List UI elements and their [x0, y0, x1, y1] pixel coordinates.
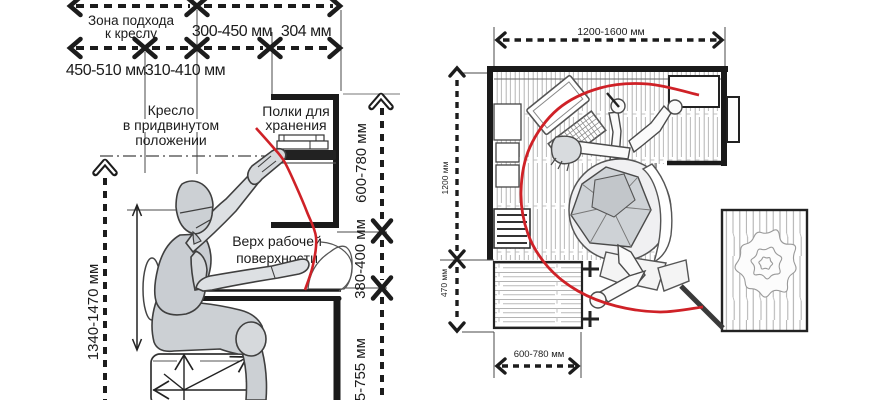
svg-text:450-510 мм: 450-510 мм [66, 62, 146, 79]
svg-text:положении: положении [135, 132, 207, 148]
svg-text:685-755 мм: 685-755 мм [352, 338, 369, 400]
svg-text:в придвинутом: в придвинутом [123, 117, 219, 133]
svg-text:380-400 мм: 380-400 мм [352, 219, 369, 299]
svg-text:хранения: хранения [265, 117, 326, 133]
svg-text:304 мм: 304 мм [281, 23, 331, 40]
svg-text:к креслу: к креслу [105, 26, 157, 41]
svg-text:Кресло: Кресло [148, 102, 195, 118]
svg-text:600-780 мм: 600-780 мм [514, 349, 565, 360]
svg-text:Верх рабочей: Верх рабочей [232, 233, 322, 249]
svg-text:1200-1600 мм: 1200-1600 мм [577, 26, 645, 38]
svg-text:600-780 мм: 600-780 мм [353, 123, 370, 203]
svg-text:1200 мм: 1200 мм [440, 161, 450, 194]
svg-text:310-410 мм: 310-410 мм [145, 62, 225, 79]
svg-text:470 мм: 470 мм [439, 269, 449, 297]
svg-text:1340-1470 мм: 1340-1470 мм [85, 264, 102, 361]
svg-text:300-450 мм: 300-450 мм [192, 23, 272, 40]
